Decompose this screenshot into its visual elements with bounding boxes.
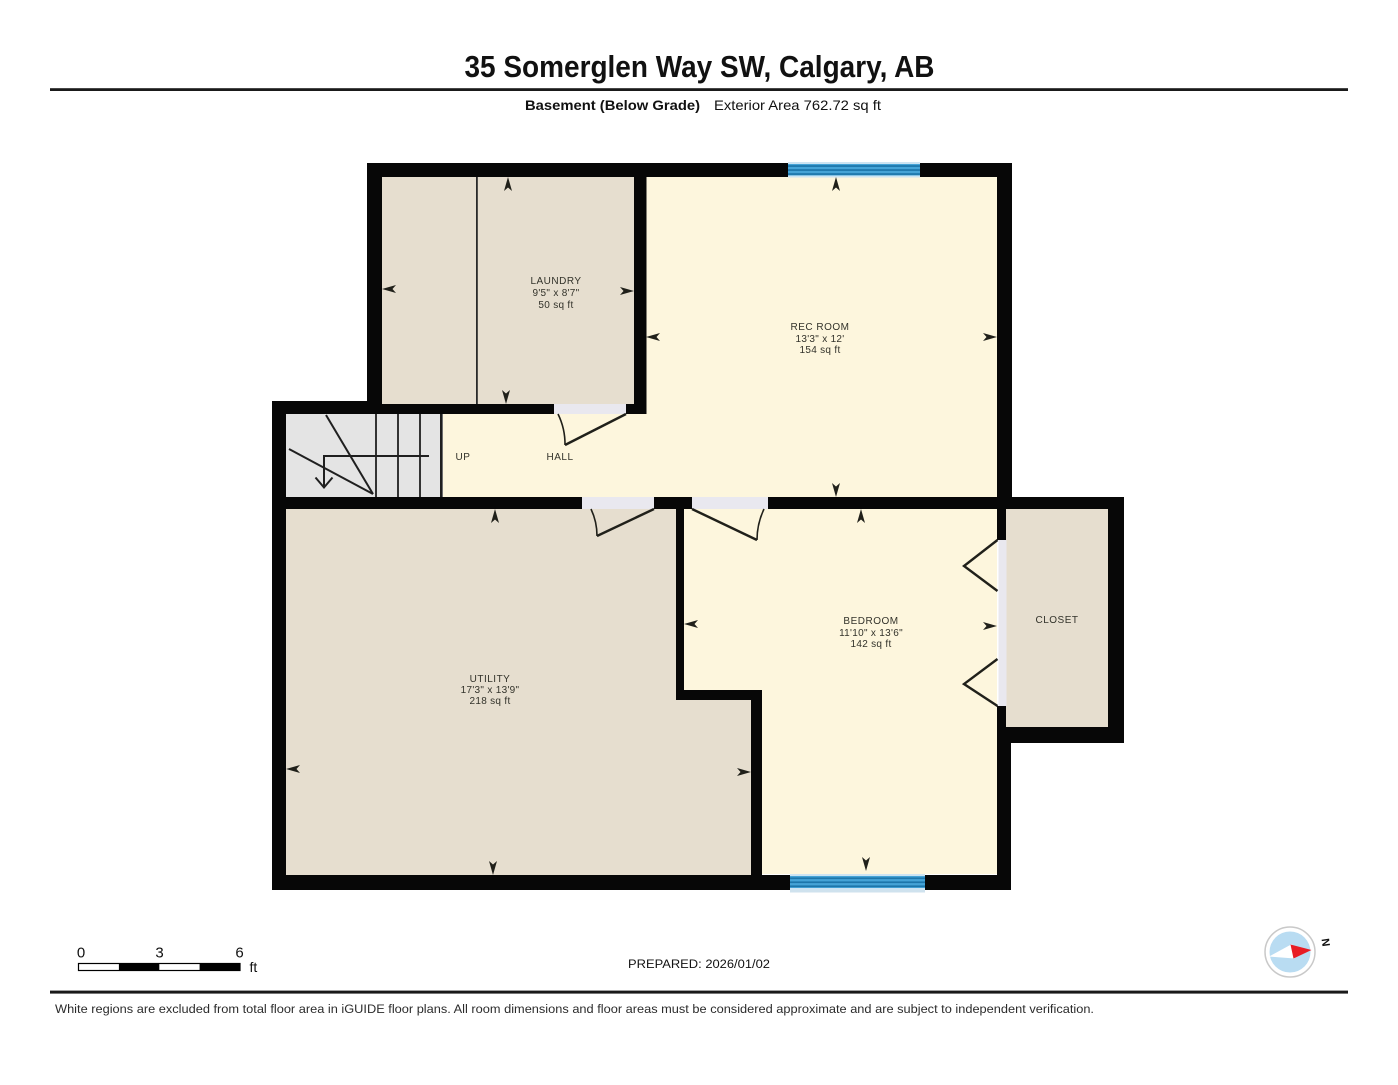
svg-text:218 sq ft: 218 sq ft [469, 696, 510, 707]
svg-text:White regions are excluded fro: White regions are excluded from total fl… [55, 1002, 1094, 1016]
svg-text:142 sq ft: 142 sq ft [850, 639, 891, 650]
svg-text:154 sq ft: 154 sq ft [799, 345, 840, 356]
svg-text:13'3" x 12': 13'3" x 12' [795, 334, 844, 345]
svg-text:3: 3 [155, 945, 163, 962]
svg-text:6: 6 [235, 945, 243, 962]
svg-text:UTILITY: UTILITY [470, 674, 511, 685]
svg-text:HALL: HALL [546, 452, 573, 463]
svg-text:UP: UP [456, 452, 471, 463]
svg-text:CLOSET: CLOSET [1035, 615, 1078, 626]
svg-text:50 sq ft: 50 sq ft [538, 300, 573, 311]
svg-text:0: 0 [77, 945, 85, 962]
svg-text:BEDROOM: BEDROOM [843, 616, 898, 627]
svg-text:REC ROOM: REC ROOM [791, 322, 850, 333]
svg-text:ft: ft [250, 959, 258, 975]
svg-text:Basement (Below Grade): Basement (Below Grade) [525, 97, 700, 113]
svg-text:17'3" x 13'9": 17'3" x 13'9" [461, 685, 520, 696]
svg-text:11'10" x 13'6": 11'10" x 13'6" [839, 628, 903, 639]
svg-text:35 Somerglen Way SW, Calgary,: 35 Somerglen Way SW, Calgary, AB [465, 49, 935, 84]
svg-text:LAUNDRY: LAUNDRY [530, 276, 581, 287]
svg-text:9'5" x 8'7": 9'5" x 8'7" [532, 288, 579, 299]
svg-text:Exterior Area 762.72 sq ft: Exterior Area 762.72 sq ft [714, 97, 881, 113]
svg-text:PREPARED: 2026/01/02: PREPARED: 2026/01/02 [628, 957, 770, 971]
svg-text:N: N [1318, 938, 1331, 948]
